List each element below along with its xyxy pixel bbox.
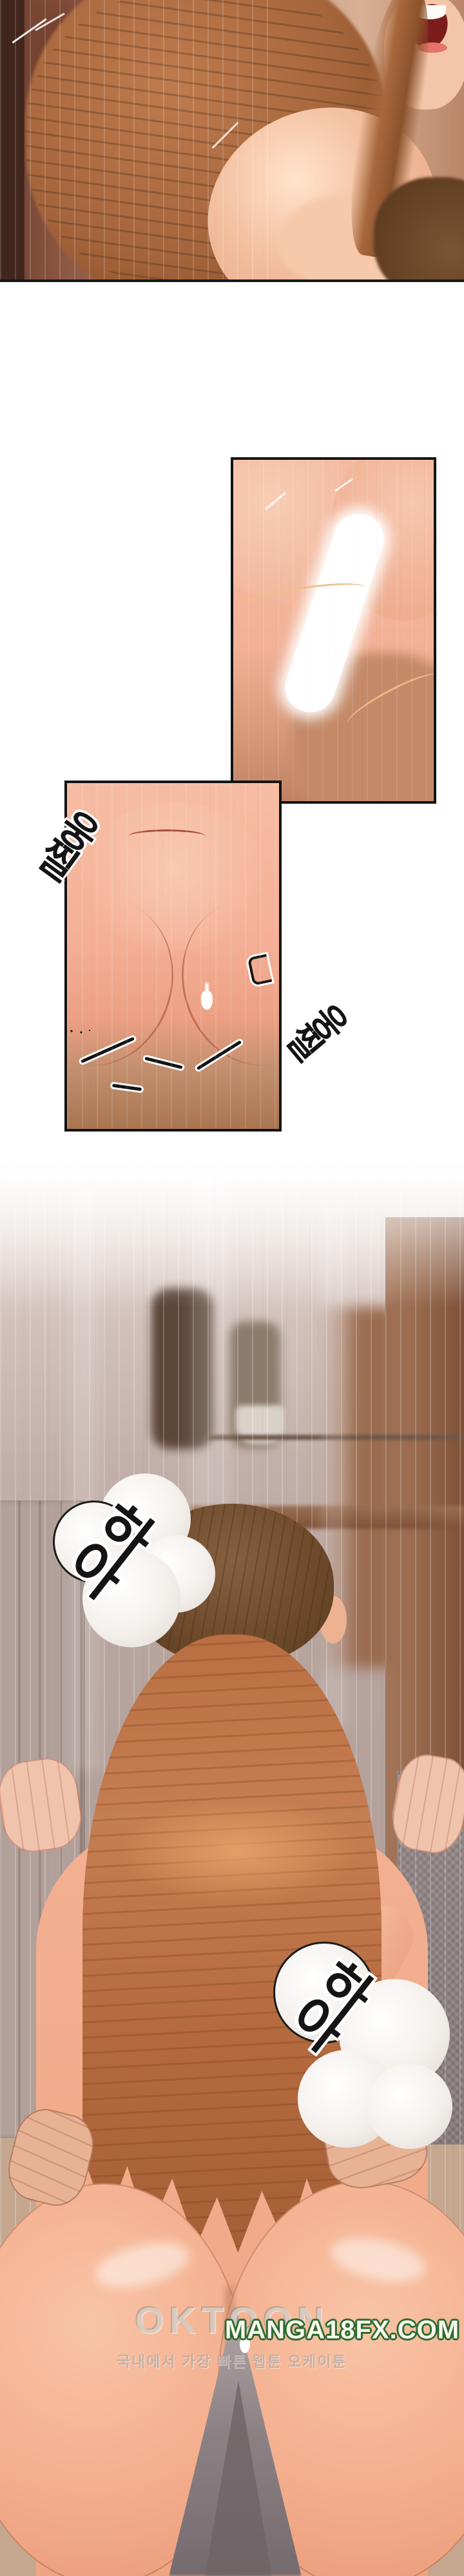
- sfx-squiggle: [144, 1057, 182, 1069]
- puff-cloud: [367, 2064, 452, 2149]
- sfx-dots: [68, 1028, 94, 1034]
- sfx-squiggle: [112, 1084, 142, 1091]
- sfx-bubble-moan-1: 하아: [53, 1473, 208, 1692]
- webtoon-page: 웅찔 웅찔: [0, 0, 464, 2576]
- navel-line: [128, 829, 206, 843]
- panel-1-top-scene: [0, 0, 464, 282]
- watermark: OKTOON MANGA18FX.COM 국내에서 가장 빠른 웹툰 오케이툰: [0, 2299, 464, 2389]
- watermark-site-url: MANGA18FX.COM: [220, 2316, 464, 2345]
- sfx-twitch-text-2: 웅찔: [276, 989, 359, 1070]
- watermark-tagline: 국내에서 가장 빠른 웹툰 오케이툰: [71, 2349, 393, 2371]
- panel-4-shower-scene: 하아 하아 OKTOON MANGA18FX.COM 국내에서 가장 빠른 웹툰…: [0, 1153, 464, 2576]
- white-drip: [201, 990, 213, 1010]
- hair-shine: [116, 1797, 361, 1906]
- white-fade-top: [0, 1153, 464, 1307]
- sfx-bubble-moan-2: 하아: [263, 1942, 456, 2219]
- panel-2-closeup: [231, 457, 436, 804]
